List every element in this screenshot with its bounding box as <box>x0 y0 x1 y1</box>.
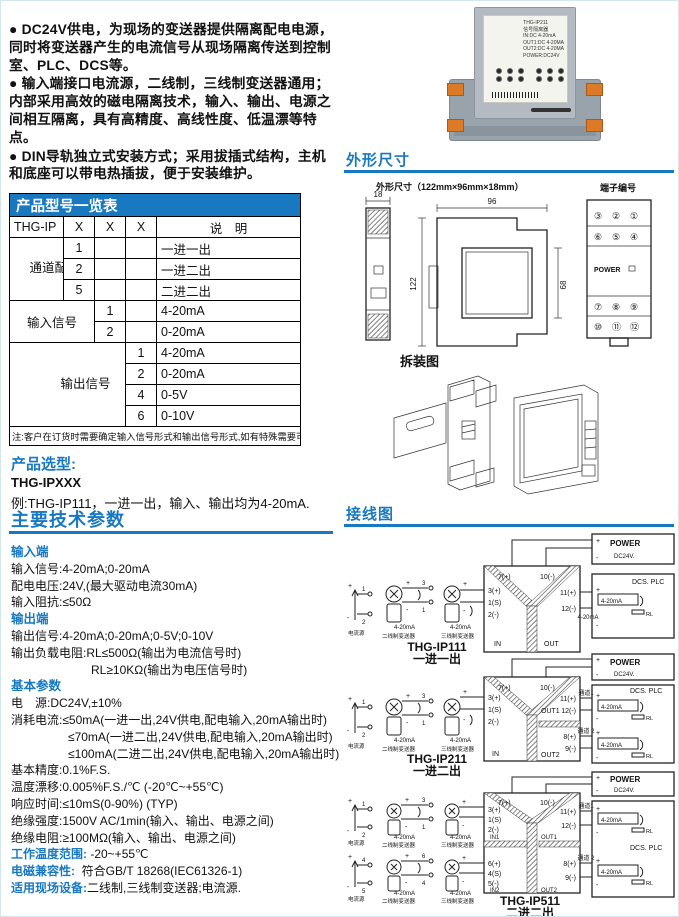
svg-text:+: + <box>463 581 467 588</box>
front-view: 18 <box>366 190 390 340</box>
isolator-box: 7(+) 10(-) 3(+) 1(S) 2(-) IN OUT1 OUT2 1… <box>484 677 580 761</box>
wiring-diagram-ip111: + 1 2 - 电流源 + 3 - 1 4-20mA 二线制变送器 <box>342 532 678 664</box>
table-cell: 2 <box>64 259 95 280</box>
table-cell: 2 <box>126 364 157 385</box>
svg-text:+: + <box>596 775 600 782</box>
svg-text:10(-): 10(-) <box>540 574 555 581</box>
svg-text:三线制变送器: 三线制变送器 <box>441 897 475 905</box>
current-source-1: + 1 2 - 电流源 <box>347 798 372 847</box>
svg-text:DC24V.: DC24V. <box>614 672 635 678</box>
terminal-number: ⑦ <box>594 302 602 312</box>
svg-text:+: + <box>348 854 352 861</box>
svg-text:IN: IN <box>494 641 501 648</box>
svg-text:IN: IN <box>492 751 499 758</box>
wire-label: 4-20mA <box>577 615 598 621</box>
bullet-2: ● 输入端接口电流源，二线制，三线制变送器通用；内部采用高效的磁电隔离技术，输入… <box>9 75 339 146</box>
svg-text:电流源: 电流源 <box>348 742 365 750</box>
svg-text:+: + <box>462 855 466 862</box>
param-line: 输入阻抗:≤50Ω <box>11 594 341 611</box>
svg-text:-: - <box>596 623 599 630</box>
svg-text:1: 1 <box>422 825 426 831</box>
svg-text:4-20mA: 4-20mA <box>450 625 471 631</box>
svg-text:2: 2 <box>362 620 366 626</box>
terminal-dots <box>496 68 527 82</box>
terminal-dots <box>536 68 567 82</box>
module-label-text: THG-IP211 信号隔离器 IN:DC 4-20mA OUT1:DC 4-2… <box>523 20 564 59</box>
param-line: 基本精度:0.1%F.S. <box>11 762 341 779</box>
two-wire-transmitter: + 3 - 1 4-20mA 二线制变送器 <box>382 580 433 640</box>
svg-text:-: - <box>596 830 599 837</box>
isolator-box: 7(+) 10(-) 3(+) 1(S) 2(-) IN1 6(+) 4(S) … <box>484 793 580 894</box>
three-wire-transmitter: + - 4-20mA 三线制变送器 <box>441 581 484 640</box>
selection-title: 产品选型: <box>11 453 76 474</box>
power-box: + - POWER DC24V. <box>592 772 674 796</box>
svg-text:+: + <box>596 858 600 865</box>
svg-text:DCS. PLC: DCS. PLC <box>630 688 662 695</box>
svg-text:7(+): 7(+) <box>498 800 511 807</box>
table-cell: 0-20mA <box>157 322 301 343</box>
svg-text:4: 4 <box>362 858 366 864</box>
terminal-number: ⑤ <box>612 232 620 242</box>
svg-text:+: + <box>405 853 409 860</box>
selection-model: THG-IPXXX <box>11 475 81 490</box>
param-line: 输出信号:4-20mA;0-20mA;0-5V;0-10V <box>11 628 341 645</box>
svg-text:-: - <box>462 879 465 886</box>
svg-text:+: + <box>596 587 600 594</box>
param-line: RL≥10KΩ(输出为电压信号时) <box>11 662 341 679</box>
svg-text:2: 2 <box>362 733 366 739</box>
svg-text:3: 3 <box>422 581 426 587</box>
base-column <box>448 376 496 490</box>
svg-text:+: + <box>348 583 352 590</box>
wiring-diagram-ip511: + 1 2 - 电流源 + 3 - 1 4-20mA 二线制变送器 <box>342 771 678 917</box>
svg-text:+: + <box>406 580 410 587</box>
output-wires <box>580 811 592 877</box>
param-line: 温度漂移:0.005%F.S./℃ (-20℃~+55℃) <box>11 779 341 796</box>
two-wire-transmitter-1: + 3 - 1 4-20mA 二线制变送器 <box>382 797 433 849</box>
svg-text:4: 4 <box>422 881 426 887</box>
current-source-2: + 4 5 - 电流源 <box>347 854 372 903</box>
power-wires <box>512 659 592 677</box>
svg-text:-: - <box>347 728 350 735</box>
param-line: 电 源:DC24V,±10% <box>11 695 341 712</box>
svg-text:1: 1 <box>422 721 426 727</box>
svg-text:3: 3 <box>422 798 426 804</box>
svg-text:1(S): 1(S) <box>488 707 501 714</box>
svg-text:+: + <box>462 799 466 806</box>
svg-text:-: - <box>596 555 599 562</box>
table-cell: 0-10V <box>157 406 301 427</box>
dimension-drawing: 外形尺寸（122mm×96mm×18mm） 18 96 <box>342 178 674 350</box>
svg-text:二线制变送器: 二线制变送器 <box>382 632 416 640</box>
svg-text:二线制变送器: 二线制变送器 <box>382 841 416 849</box>
table-cell: 1 <box>64 238 95 259</box>
svg-text:IN2: IN2 <box>490 888 500 894</box>
three-wire-transmitter-2: + - 4-20mA 三线制变送器 <box>441 855 484 905</box>
svg-text:8(+): 8(+) <box>563 734 576 741</box>
param-line: 响应时间:≤10mS(0-90%) (TYP) <box>11 796 341 813</box>
svg-text:2(-): 2(-) <box>488 612 499 619</box>
svg-text:12(-): 12(-) <box>561 606 576 613</box>
svg-text:-: - <box>462 823 465 830</box>
terminal-number: ① <box>630 211 638 221</box>
terminal-panel-title: 端子编号 <box>600 182 636 193</box>
svg-text:1: 1 <box>422 608 426 614</box>
terminal-number: ⑨ <box>630 302 638 312</box>
svg-text:-: - <box>405 824 408 831</box>
table-note: 注:客户在订货时需要确定输入信号形式和输出信号形式,如有特殊需要可以定制. <box>10 427 301 446</box>
bullet-1: ● DC24V供电，为现场的变送器提供隔离配电电源，同时将变送器产生的电流信号从… <box>9 21 339 74</box>
power-label: POWER <box>594 267 620 274</box>
table-cell: 1 <box>95 301 126 322</box>
group-input-signal: 输入信号 <box>10 301 95 343</box>
param-line: 配电电压:24V,(最大驱动电流30mA) <box>11 578 341 595</box>
table-header-x1: X <box>64 217 95 238</box>
terminal-number: ⑪ <box>612 322 621 332</box>
table-cell: 4-20mA <box>157 301 301 322</box>
table-cell: 1 <box>126 343 157 364</box>
svg-text:-: - <box>596 788 599 795</box>
wiring-diagram-ip211: + 1 2 - 电流源 + 3 - 1 4-20mA 二线制变送器 <box>342 653 678 775</box>
terminal-number: ⑫ <box>630 322 639 332</box>
wiring-rule <box>344 524 674 527</box>
svg-text:RL: RL <box>646 881 653 887</box>
output-wires <box>580 592 592 608</box>
svg-text:4-20mA: 4-20mA <box>450 835 471 841</box>
bullet-3: ● DIN导轨独立式安装方式；采用拔插式结构，主机和底座可以带电热插拔，便于安装… <box>9 148 339 184</box>
intro-bullets: ● DC24V供电，为现场的变送器提供隔离配电电源，同时将变送器产生的电流信号从… <box>9 21 339 184</box>
svg-text:7(+): 7(+) <box>498 574 511 581</box>
svg-text:4-20mA: 4-20mA <box>601 705 622 711</box>
param-line-devices: 适用现场设备:二线制,三线制变送器;电流源. <box>11 880 341 897</box>
dcs-box: DCS. PLC + 4-20mA RL - <box>592 574 674 638</box>
svg-text:9(-): 9(-) <box>565 875 576 882</box>
svg-text:4-20mA: 4-20mA <box>450 738 471 744</box>
dcs-box: + 4-20mA RL - DCS. PLC + 4-20mA RL - <box>592 801 674 897</box>
terminal-number: ② <box>612 211 620 221</box>
svg-text:4-20mA: 4-20mA <box>394 625 415 631</box>
svg-text:7(+): 7(+) <box>498 685 511 692</box>
current-source: + 1 2 - 电流源 <box>347 583 372 637</box>
power-led <box>629 266 635 271</box>
svg-text:电流源: 电流源 <box>348 629 365 637</box>
svg-text:OUT: OUT <box>544 641 560 648</box>
terminal-number: ⑥ <box>594 232 602 242</box>
svg-text:RL: RL <box>646 716 653 722</box>
disassembly-drawing <box>386 363 601 503</box>
table-header-x3: X <box>126 217 157 238</box>
param-line: ≤70mA(一进二出,24V供电,配电输入,20mA输出时) <box>11 729 341 746</box>
param-line: 绝缘强度:1500V AC/1min(输入、输出、电源之间) <box>11 813 341 830</box>
table-cell: 0-20mA <box>157 364 301 385</box>
terminal-number: ⑧ <box>612 302 620 312</box>
svg-text:4-20mA: 4-20mA <box>394 835 415 841</box>
svg-text:电流源: 电流源 <box>348 839 365 847</box>
svg-text:RL: RL <box>646 754 653 760</box>
table-cell: 4 <box>126 385 157 406</box>
terminal-number: ⑩ <box>594 322 602 332</box>
terminal-clamp <box>586 83 603 96</box>
svg-text:-: - <box>406 720 409 727</box>
params-rule <box>9 531 333 534</box>
params-title: 主要技术参数 <box>11 506 125 532</box>
svg-text:4-20mA: 4-20mA <box>450 891 471 897</box>
plug-in-module <box>514 385 598 494</box>
param-line: 输入信号:4-20mA;0-20mA <box>11 561 341 578</box>
table-header-model: THG-IP <box>10 217 64 238</box>
terminal-number: ③ <box>594 211 602 221</box>
terminal-clamp <box>586 119 603 132</box>
isolator-module: THG-IP211 信号隔离器 IN:DC 4-20mA OUT1:DC 4-2… <box>474 7 576 119</box>
param-line-temp-range: 工作温度范围: -20~+55℃ <box>11 846 341 863</box>
table-cell: 二进二出 <box>157 280 301 301</box>
model-table-title: 产品型号一览表 <box>10 194 301 217</box>
svg-text:DCS. PLC: DCS. PLC <box>630 845 662 852</box>
dcs-box: DCS. PLC + 4-20mA RL - + 4-20mA RL - <box>592 685 674 763</box>
dims-label: 外形尺寸（122mm×96mm×18mm） <box>375 181 524 192</box>
svg-text:RL: RL <box>646 612 653 618</box>
svg-text:3(+): 3(+) <box>488 807 501 814</box>
svg-text:POWER: POWER <box>610 775 640 784</box>
svg-text:12(-): 12(-) <box>561 708 576 715</box>
diagram-subtitle: 二进二出 <box>506 905 554 917</box>
svg-text:4(S): 4(S) <box>488 871 501 878</box>
param-head-output: 输出端 <box>11 611 341 628</box>
svg-text:6: 6 <box>422 854 426 860</box>
svg-text:OUT2: OUT2 <box>541 752 560 759</box>
svg-text:4-20mA: 4-20mA <box>394 738 415 744</box>
svg-text:+: + <box>596 538 600 545</box>
svg-text:9(-): 9(-) <box>565 746 576 753</box>
svg-text:2(-): 2(-) <box>488 719 499 726</box>
barcode <box>492 92 538 98</box>
svg-text:+: + <box>348 696 352 703</box>
svg-text:1: 1 <box>362 700 366 706</box>
terminal-panel: 端子编号 ③ ② ① ⑥ ⑤ ④ POWER ⑦ ⑧ ⑨ ⑩ ⑪ ⑫ <box>587 182 651 346</box>
wiring-title: 接线图 <box>346 503 394 524</box>
svg-text:-: - <box>596 716 599 723</box>
svg-text:-: - <box>463 717 466 724</box>
svg-text:10(-): 10(-) <box>540 685 555 692</box>
svg-text:三线制变送器: 三线制变送器 <box>441 841 475 849</box>
svg-text:5(-): 5(-) <box>488 881 499 888</box>
svg-text:3: 3 <box>422 694 426 700</box>
param-line: 消耗电流:≤50mA(一进一出,24V供电,配电输入,20mA输出时) <box>11 712 341 729</box>
isolator-box: 7(+) 10(-) 3(+) 1(S) 2(-) IN OUT 11(+) 1… <box>484 566 580 652</box>
svg-text:-: - <box>406 607 409 614</box>
svg-text:1(S): 1(S) <box>488 817 501 824</box>
outline-title: 外形尺寸 <box>346 149 410 170</box>
power-wires <box>512 777 592 793</box>
svg-text:+: + <box>596 730 600 737</box>
svg-text:3(+): 3(+) <box>488 695 501 702</box>
outline-rule <box>344 170 674 173</box>
svg-text:11(+): 11(+) <box>560 809 576 816</box>
dim-18: 18 <box>374 190 383 199</box>
table-cell: 一进一出 <box>157 238 301 259</box>
svg-text:POWER: POWER <box>610 658 640 667</box>
svg-text:电流源: 电流源 <box>348 895 365 903</box>
param-head-basic: 基本参数 <box>11 678 341 695</box>
svg-text:1(S): 1(S) <box>488 600 501 607</box>
param-line: 绝缘电阻:≥100MΩ(输入、输出、电源之间) <box>11 830 341 847</box>
svg-text:OUT1: OUT1 <box>541 708 560 715</box>
svg-text:+: + <box>596 657 600 664</box>
svg-text:+: + <box>596 693 600 700</box>
group-output-signal: 输出信号 <box>10 343 126 427</box>
terminal-clamp <box>447 119 464 132</box>
svg-text:RL: RL <box>646 829 653 835</box>
power-wires <box>512 540 592 566</box>
param-line-emc: 电磁兼容性: 符合GB/T 18268(IEC61326-1) <box>11 863 341 880</box>
param-line: ≤100mA(二进二出,24V供电,配电输入,20mA输出时) <box>11 746 341 763</box>
din-rail-plate <box>394 403 446 458</box>
three-wire-transmitter: + - 4-20mA 三线制变送器 <box>441 689 484 753</box>
svg-text:+: + <box>348 798 352 805</box>
three-wire-transmitter-1: + - 4-20mA 三线制变送器 <box>441 799 484 849</box>
terminal-number: ④ <box>630 232 638 242</box>
table-cell: 2 <box>95 322 126 343</box>
svg-text:-: - <box>596 672 599 679</box>
svg-text:+: + <box>463 689 467 696</box>
model-table: 产品型号一览表 THG-IP X X X 说 明 通道配置 1 一进一出 2一进… <box>9 193 301 446</box>
svg-text:-: - <box>596 755 599 762</box>
table-cell: 5 <box>64 280 95 301</box>
table-header-x2: X <box>95 217 126 238</box>
svg-text:二线制变送器: 二线制变送器 <box>382 897 416 905</box>
svg-text:8(+): 8(+) <box>563 861 576 868</box>
svg-text:+: + <box>406 693 410 700</box>
svg-text:5: 5 <box>362 889 366 895</box>
table-cell: 6 <box>126 406 157 427</box>
svg-text:4-20mA: 4-20mA <box>601 870 622 876</box>
svg-text:4-20mA: 4-20mA <box>601 599 622 605</box>
svg-text:DC24V.: DC24V. <box>614 554 635 560</box>
svg-text:2: 2 <box>362 833 366 839</box>
svg-text:-: - <box>347 884 350 891</box>
svg-text:4-20mA: 4-20mA <box>601 818 622 824</box>
table-cell: 一进二出 <box>157 259 301 280</box>
module-slot <box>531 108 571 112</box>
side-view: 96 122 68 <box>409 197 568 346</box>
svg-text:6(+): 6(+) <box>488 861 501 868</box>
power-box: + - POWER DC24V. <box>592 534 674 564</box>
table-cell: 4-20mA <box>157 343 301 364</box>
table-header-desc: 说 明 <box>157 217 301 238</box>
svg-text:DC24V.: DC24V. <box>614 788 635 794</box>
svg-text:IN1: IN1 <box>490 835 500 841</box>
param-line: 输出负载电阻:RL≤500Ω(输出为电流信号时) <box>11 645 341 662</box>
svg-text:三线制变送器: 三线制变送器 <box>441 632 475 640</box>
module-label: THG-IP211 信号隔离器 IN:DC 4-20mA OUT1:DC 4-2… <box>483 15 568 103</box>
svg-text:3(+): 3(+) <box>488 588 501 595</box>
params-list: 输入端 输入信号:4-20mA;0-20mA 配电电压:24V,(最大驱动电流3… <box>11 544 341 897</box>
svg-text:-: - <box>347 615 350 622</box>
svg-text:11(+): 11(+) <box>560 696 576 703</box>
svg-text:+: + <box>405 797 409 804</box>
svg-text:-: - <box>463 608 466 615</box>
svg-text:-: - <box>347 828 350 835</box>
two-wire-transmitter-2: + 6 - 4 4-20mA 二线制变送器 <box>382 853 433 905</box>
datasheet-page: ● DC24V供电，为现场的变送器提供隔离配电电源，同时将变送器产生的电流信号从… <box>0 0 679 917</box>
svg-text:4-20mA: 4-20mA <box>394 891 415 897</box>
svg-text:4-20mA: 4-20mA <box>601 743 622 749</box>
svg-text:12(-): 12(-) <box>561 823 576 830</box>
power-box: + - POWER DC24V. <box>592 654 674 680</box>
svg-text:2(-): 2(-) <box>488 827 499 834</box>
svg-text:+: + <box>596 806 600 813</box>
current-source: + 1 2 - 电流源 <box>347 696 372 750</box>
group-channel-config: 通道配置 <box>10 238 64 301</box>
svg-text:DCS. PLC: DCS. PLC <box>632 579 664 586</box>
table-cell: 0-5V <box>157 385 301 406</box>
svg-text:-: - <box>405 880 408 887</box>
dim-122: 122 <box>409 277 418 291</box>
param-head-input: 输入端 <box>11 544 341 561</box>
svg-text:-: - <box>596 882 599 889</box>
dim-68: 68 <box>559 280 568 289</box>
svg-text:10(-): 10(-) <box>540 800 555 807</box>
svg-text:POWER: POWER <box>610 539 640 548</box>
output-wires <box>580 698 592 748</box>
svg-text:1: 1 <box>362 802 366 808</box>
svg-text:11(+): 11(+) <box>560 590 576 597</box>
terminal-clamp <box>447 83 464 96</box>
svg-text:1: 1 <box>362 587 366 593</box>
svg-text:OUT1: OUT1 <box>541 835 558 841</box>
two-wire-transmitter: + 3 - 1 4-20mA 二线制变送器 <box>382 693 433 753</box>
dim-96: 96 <box>488 197 497 206</box>
product-photo: THG-IP211 信号隔离器 IN:DC 4-20mA OUT1:DC 4-2… <box>449 7 601 147</box>
